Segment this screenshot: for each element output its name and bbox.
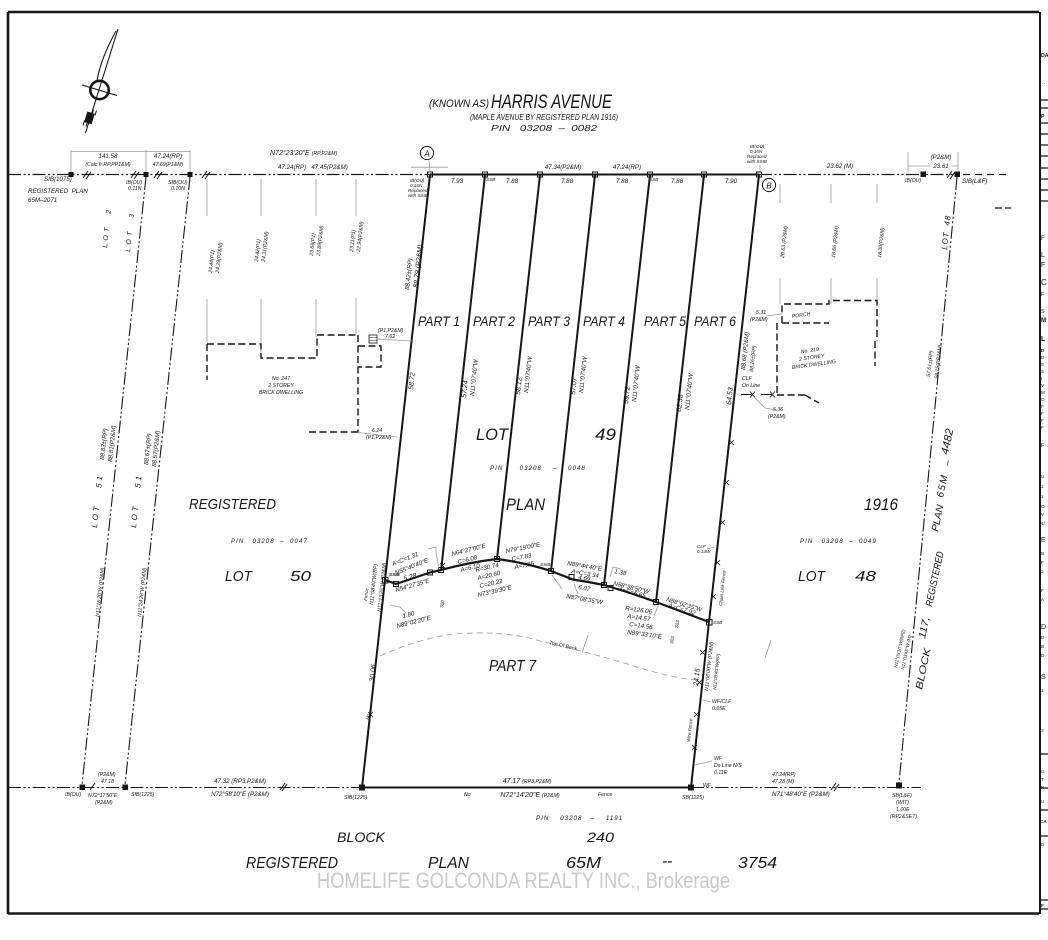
svg-text:1: 1 bbox=[1041, 494, 1044, 499]
svg-text:F: F bbox=[1041, 262, 1045, 269]
svg-text:(P2&M): (P2&M) bbox=[931, 154, 952, 161]
svg-text:47.28 (M): 47.28 (M) bbox=[772, 779, 794, 785]
svg-text:0.10N: 0.10N bbox=[171, 186, 185, 192]
svg-text:Ds Line N/S: Ds Line N/S bbox=[714, 763, 742, 769]
svg-text:N/: N/ bbox=[1040, 521, 1045, 526]
svg-text:with SSIB: with SSIB bbox=[408, 193, 428, 198]
svg-text:SIB(L&F): SIB(L&F) bbox=[962, 178, 987, 185]
svg-text:CLF: CLF bbox=[742, 376, 753, 382]
svg-text:7.88: 7.88 bbox=[671, 178, 684, 185]
svg-text:CA: CA bbox=[1040, 819, 1047, 824]
svg-text:47.69(P1&M): 47.69(P1&M) bbox=[153, 162, 184, 168]
svg-text:F: F bbox=[1041, 404, 1044, 409]
svg-text:1916: 1916 bbox=[864, 495, 898, 514]
svg-text:T: T bbox=[1041, 777, 1044, 782]
svg-text:7.88: 7.88 bbox=[506, 178, 519, 185]
svg-text:47.24(RP): 47.24(RP) bbox=[613, 164, 641, 171]
svg-text:2 STOREY: 2 STOREY bbox=[267, 383, 294, 389]
svg-text:(P2&M): (P2&M) bbox=[750, 317, 768, 323]
svg-text:PLAN: PLAN bbox=[506, 495, 546, 514]
svg-text:3754: 3754 bbox=[738, 855, 777, 872]
svg-text:PIN 03208 – 0082: PIN 03208 – 0082 bbox=[491, 124, 598, 133]
svg-text:1.00E: 1.00E bbox=[896, 807, 910, 813]
svg-text:240: 240 bbox=[586, 829, 614, 845]
svg-text:SB(L&F): SB(L&F) bbox=[892, 793, 912, 799]
svg-text:N: N bbox=[1041, 785, 1044, 790]
svg-text:DA: DA bbox=[1041, 53, 1048, 59]
svg-text:..: .. bbox=[1042, 80, 1045, 86]
svg-text:WF: WF bbox=[714, 756, 723, 762]
svg-text:N71°48'40"E (P2&M): N71°48'40"E (P2&M) bbox=[772, 791, 830, 798]
svg-text:2: 2 bbox=[1041, 569, 1044, 574]
svg-text:L: L bbox=[1041, 252, 1045, 259]
svg-text:N72°58'10"E (P2&M): N72°58'10"E (P2&M) bbox=[211, 791, 269, 798]
svg-text:LOT: LOT bbox=[225, 568, 254, 585]
svg-text:PART 1: PART 1 bbox=[418, 314, 460, 329]
svg-text:with SSIB: with SSIB bbox=[747, 159, 767, 164]
svg-text:0.11E: 0.11E bbox=[714, 770, 728, 776]
svg-text:REGISTERED PLAN: REGISTERED PLAN bbox=[28, 188, 88, 195]
svg-text:B: B bbox=[1041, 551, 1044, 556]
svg-text:(P2&M): (P2&M) bbox=[98, 772, 116, 778]
svg-text:F: F bbox=[1041, 903, 1044, 908]
svg-text:N72°14'20"E (P2&M): N72°14'20"E (P2&M) bbox=[500, 791, 560, 799]
svg-text:SIB(1225): SIB(1225) bbox=[344, 795, 368, 801]
svg-text:B: B bbox=[1041, 644, 1044, 649]
svg-text:L: L bbox=[1041, 336, 1046, 343]
svg-text:F: F bbox=[1041, 425, 1044, 430]
svg-text:D: D bbox=[1041, 624, 1046, 631]
svg-text:1: 1 bbox=[1041, 688, 1044, 693]
svg-text:47.24(RP): 47.24(RP) bbox=[154, 153, 182, 160]
svg-text:F: F bbox=[1041, 411, 1044, 416]
svg-text:WF/CLF: WF/CLF bbox=[712, 699, 732, 705]
svg-text:M: M bbox=[1041, 317, 1046, 324]
svg-text:O: O bbox=[1041, 397, 1045, 402]
svg-text:65M–2071: 65M–2071 bbox=[28, 197, 57, 204]
svg-text:On Line: On Line bbox=[742, 383, 760, 389]
svg-text:F: F bbox=[1041, 235, 1045, 242]
svg-text:47.24(RP): 47.24(RP) bbox=[772, 772, 796, 778]
svg-text:F: F bbox=[1041, 443, 1044, 449]
svg-text:SIB(1075): SIB(1075) bbox=[44, 176, 72, 183]
svg-text:PIN 03208 – 0047: PIN 03208 – 0047 bbox=[231, 538, 308, 545]
svg-text:LOT: LOT bbox=[476, 425, 510, 444]
svg-text:47.24(RP) 47.45(P2&M): 47.24(RP) 47.45(P2&M) bbox=[278, 164, 348, 171]
svg-text:141.58: 141.58 bbox=[99, 153, 118, 160]
svg-text:F: F bbox=[1041, 560, 1044, 565]
svg-text:7.62: 7.62 bbox=[385, 334, 395, 340]
svg-text:PIN 03208 – 1191: PIN 03208 – 1191 bbox=[536, 815, 623, 822]
svg-text:47.34(P2&M): 47.34(P2&M) bbox=[545, 164, 581, 171]
svg-text:S: S bbox=[1041, 309, 1045, 315]
svg-text:O: O bbox=[1041, 504, 1045, 509]
svg-text:PART 7: PART 7 bbox=[489, 658, 537, 675]
svg-text:PART 2: PART 2 bbox=[473, 314, 515, 329]
svg-text:PART 4: PART 4 bbox=[583, 314, 625, 329]
svg-text:SSIB: SSIB bbox=[540, 562, 550, 567]
svg-text:PART 5: PART 5 bbox=[644, 314, 686, 329]
svg-text:PART 6: PART 6 bbox=[694, 314, 736, 329]
svg-text:PIN 03208 – 0049: PIN 03208 – 0049 bbox=[800, 538, 877, 545]
svg-text:I: I bbox=[1041, 376, 1042, 381]
svg-text:B: B bbox=[766, 182, 772, 191]
svg-text:HARRIS AVENUE: HARRIS AVENUE bbox=[491, 92, 612, 113]
svg-text:F: F bbox=[1041, 588, 1044, 593]
svg-text:SSB: SSB bbox=[713, 620, 722, 625]
svg-text:S: S bbox=[1041, 362, 1044, 367]
svg-text:HOMELIFE GOLCONDA REALTY INC.,: HOMELIFE GOLCONDA REALTY INC., Brokerage bbox=[317, 868, 730, 893]
svg-text:(P2&M): (P2&M) bbox=[768, 414, 786, 420]
svg-text:7.93: 7.93 bbox=[451, 178, 464, 185]
svg-text:1: 1 bbox=[1041, 484, 1044, 489]
svg-text:A: A bbox=[423, 150, 429, 159]
svg-text:No: No bbox=[464, 792, 471, 798]
svg-text:M: M bbox=[1041, 390, 1045, 395]
svg-text:SIB(1225): SIB(1225) bbox=[131, 792, 155, 798]
svg-text:IB(OU): IB(OU) bbox=[65, 792, 81, 798]
svg-text:SSB: SSB bbox=[486, 177, 495, 182]
svg-text:(P2&M): (P2&M) bbox=[95, 800, 113, 806]
svg-text:P: P bbox=[1041, 114, 1045, 120]
svg-text:5.36: 5.36 bbox=[773, 407, 783, 413]
svg-text:U: U bbox=[1041, 799, 1044, 804]
svg-text:48: 48 bbox=[855, 568, 877, 585]
svg-text:47.17 (RP3,P2&M): 47.17 (RP3,P2&M) bbox=[503, 778, 552, 785]
svg-text:S: S bbox=[1041, 369, 1044, 374]
svg-text:LOT: LOT bbox=[798, 568, 827, 585]
svg-text:BLOCK: BLOCK bbox=[337, 829, 386, 845]
svg-text:47.32 (RP3,P2&M): 47.32 (RP3,P2&M) bbox=[214, 778, 266, 785]
svg-text:(RP2&SET): (RP2&SET) bbox=[890, 814, 917, 820]
svg-text:PIN 03208 – 0048: PIN 03208 – 0048 bbox=[490, 465, 586, 472]
svg-text:WF: WF bbox=[703, 783, 712, 789]
svg-text:49: 49 bbox=[595, 425, 617, 444]
svg-text:E: E bbox=[1041, 537, 1046, 544]
svg-text:F: F bbox=[1041, 418, 1044, 423]
svg-text:(Calc.fr.RP,PP1&M): (Calc.fr.RP,PP1&M) bbox=[85, 162, 131, 168]
svg-text:IB(OU): IB(OU) bbox=[905, 178, 921, 184]
svg-text:No. 247: No. 247 bbox=[272, 376, 291, 382]
svg-text:7.88: 7.88 bbox=[561, 178, 574, 185]
svg-text:0.11N: 0.11N bbox=[128, 186, 142, 192]
svg-text:G: G bbox=[1041, 769, 1045, 774]
svg-text:0.14W: 0.14W bbox=[697, 549, 711, 554]
svg-text:7.88: 7.88 bbox=[616, 178, 629, 185]
svg-text:Fence: Fence bbox=[598, 792, 613, 798]
svg-text:23.61: 23.61 bbox=[932, 163, 948, 170]
svg-text:47.18: 47.18 bbox=[101, 779, 114, 785]
svg-text:PART 3: PART 3 bbox=[528, 314, 570, 329]
svg-text:(KNOWN AS): (KNOWN AS) bbox=[429, 98, 489, 110]
svg-text:0.05E: 0.05E bbox=[712, 706, 726, 712]
svg-text:(MAPLE AVENUE BY REGISTERED PL: (MAPLE AVENUE BY REGISTERED PLAN 1916) bbox=[470, 113, 618, 122]
svg-text:REGISTERED: REGISTERED bbox=[189, 497, 276, 513]
svg-text:F: F bbox=[1041, 292, 1044, 298]
svg-text:7.90: 7.90 bbox=[725, 178, 738, 185]
svg-text:2: 2 bbox=[1041, 728, 1044, 733]
svg-text:U: U bbox=[1041, 474, 1044, 479]
svg-text:SB(1225): SB(1225) bbox=[682, 795, 704, 801]
svg-text:C: C bbox=[1041, 278, 1047, 287]
svg-text:(WIT): (WIT) bbox=[896, 800, 909, 806]
svg-text:S: S bbox=[1041, 674, 1046, 681]
svg-text:6.24: 6.24 bbox=[372, 428, 382, 434]
svg-text:23.62 (M): 23.62 (M) bbox=[826, 163, 853, 170]
svg-text:N72°17'50"E: N72°17'50"E bbox=[88, 793, 118, 799]
svg-text:50: 50 bbox=[290, 568, 312, 585]
svg-text:N72°23'20"E (RP,P2&M): N72°23'20"E (RP,P2&M) bbox=[270, 149, 337, 157]
svg-text:BRICK DWELLING: BRICK DWELLING bbox=[259, 390, 303, 396]
svg-text:5.31: 5.31 bbox=[756, 310, 766, 316]
